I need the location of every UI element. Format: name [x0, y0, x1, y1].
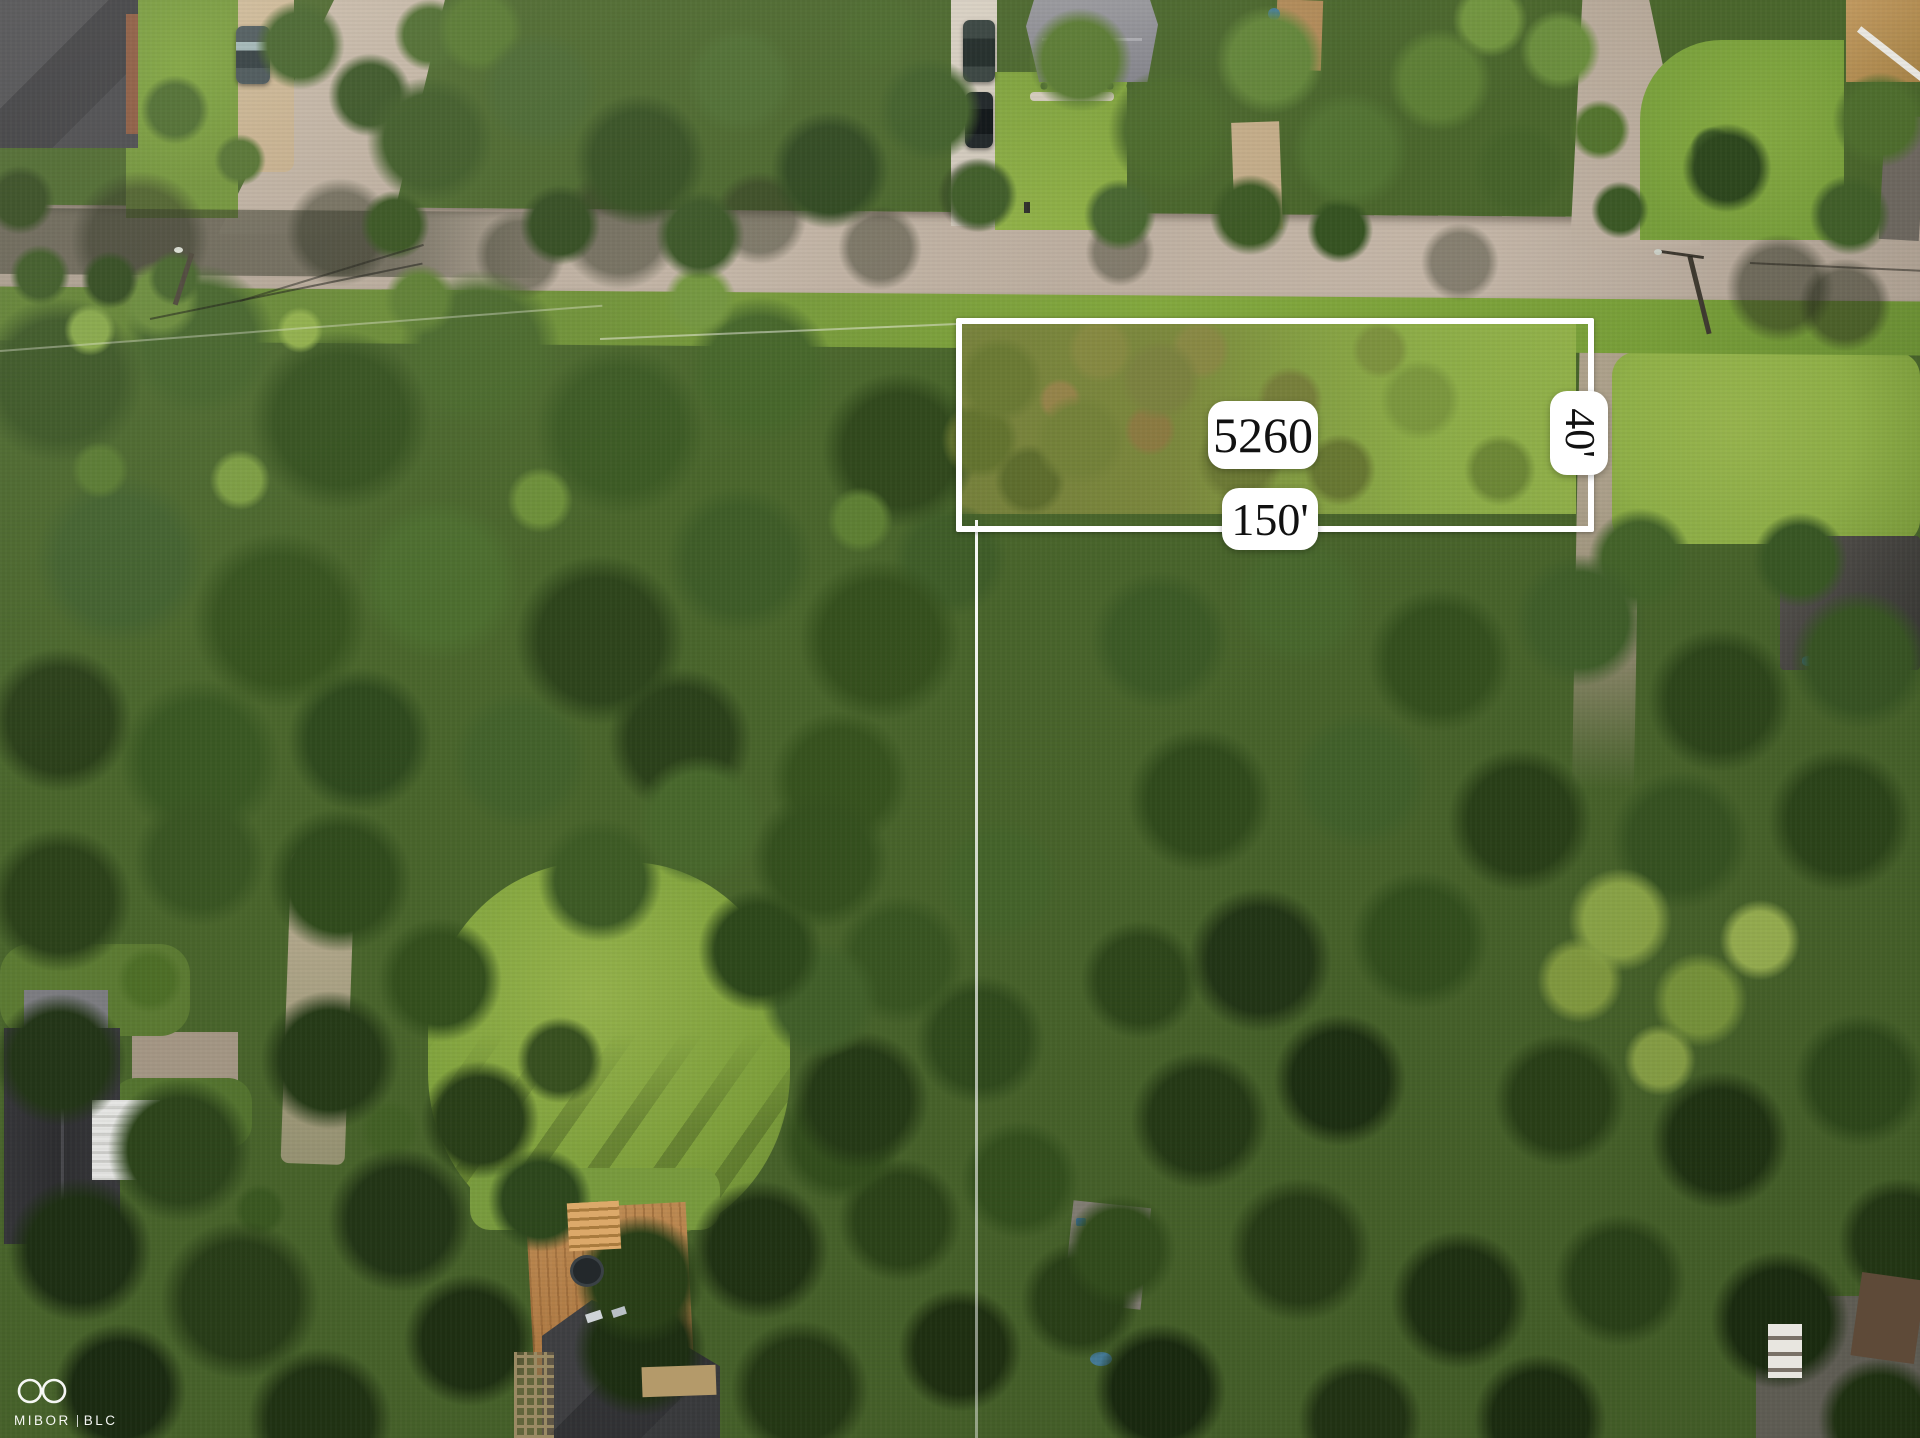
- street-lamp-right: [1654, 249, 1662, 255]
- lawn-top-left: [126, 0, 238, 218]
- tan-wall-bottom-center: [641, 1365, 716, 1398]
- blue-barrel: [1268, 8, 1280, 20]
- parked-car-top-left: [236, 26, 270, 84]
- parked-car-top-center: [965, 92, 993, 148]
- lattice-trellis: [514, 1352, 554, 1438]
- lawn-top-right-corner: [1640, 40, 1844, 240]
- brown-roof-bottom-right: [1850, 1272, 1920, 1364]
- watermark-text-secondary: BLC: [84, 1413, 118, 1428]
- pad-bottom-center-right: [1063, 1200, 1151, 1310]
- white-metal-patio-cover: [92, 1100, 160, 1180]
- lot-depth-text: 40': [1555, 408, 1603, 458]
- parked-suv-top-center: [963, 20, 995, 82]
- watermark-text-primary: MIBOR: [14, 1413, 71, 1428]
- property-line-extension: [975, 520, 978, 1438]
- watermark-text: MIBOR BLC: [14, 1413, 118, 1428]
- tree-shadow-road-left: [0, 208, 560, 278]
- path-left-side: [281, 851, 356, 1165]
- infinity-icon: [14, 1376, 70, 1406]
- meadow-right: [1612, 352, 1920, 544]
- bay-window-bottom-right: [1768, 1324, 1802, 1378]
- house-top-left: [0, 0, 138, 148]
- front-walk-top-center: [1030, 92, 1114, 101]
- mailbox: [1024, 202, 1030, 213]
- shed-roof-top-center-right: [1275, 0, 1323, 71]
- blue-pool-toy: [1266, 34, 1279, 54]
- blue-tarp-right-middle: [1802, 656, 1816, 666]
- kiddie-pool: [1090, 1352, 1112, 1366]
- driveway-top-right-corner: [1879, 115, 1920, 241]
- driveway-top-center-right: [1231, 121, 1283, 231]
- lot-number-text: 5260: [1213, 406, 1313, 464]
- aerial-lot-photo: 5260 150' 40' MIBOR BLC: [0, 0, 1920, 1438]
- watermark: MIBOR BLC: [14, 1376, 118, 1428]
- yard-clutter-blue: [1076, 1218, 1086, 1226]
- lot-depth-label: 40': [1550, 391, 1608, 475]
- lot-frontage-text: 150': [1231, 493, 1308, 546]
- street-lamp-left: [174, 247, 183, 253]
- lot-frontage-label: 150': [1222, 488, 1318, 550]
- watermark-separator: [77, 1415, 78, 1427]
- yard-clutter-white: [1096, 1292, 1106, 1300]
- house-right-middle: [1780, 536, 1920, 670]
- foundation-shrubs: [1036, 80, 1136, 92]
- yard-clutter-red: [1082, 1282, 1092, 1290]
- lot-number-label: 5260: [1208, 401, 1318, 469]
- house-top-center: [1026, 0, 1158, 82]
- hot-tub: [570, 1255, 604, 1287]
- deck-stairs: [567, 1201, 621, 1252]
